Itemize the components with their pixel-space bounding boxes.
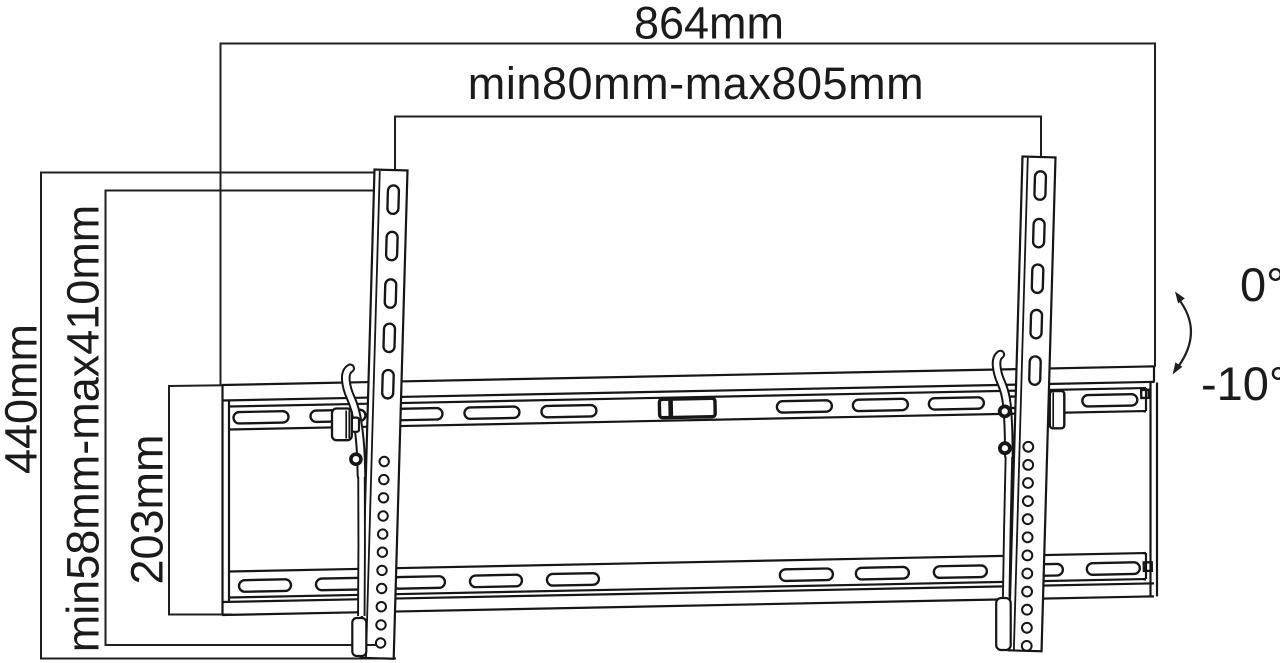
- svg-text:440mm: 440mm: [0, 324, 47, 474]
- svg-text:0°: 0°: [1240, 258, 1280, 311]
- svg-text:864mm: 864mm: [634, 0, 784, 49]
- svg-text:min80mm-max805mm: min80mm-max805mm: [468, 58, 924, 109]
- svg-text:-10°: -10°: [1201, 357, 1280, 410]
- svg-text:203mm: 203mm: [122, 434, 173, 584]
- svg-text:min58mm-max410mm: min58mm-max410mm: [58, 205, 109, 653]
